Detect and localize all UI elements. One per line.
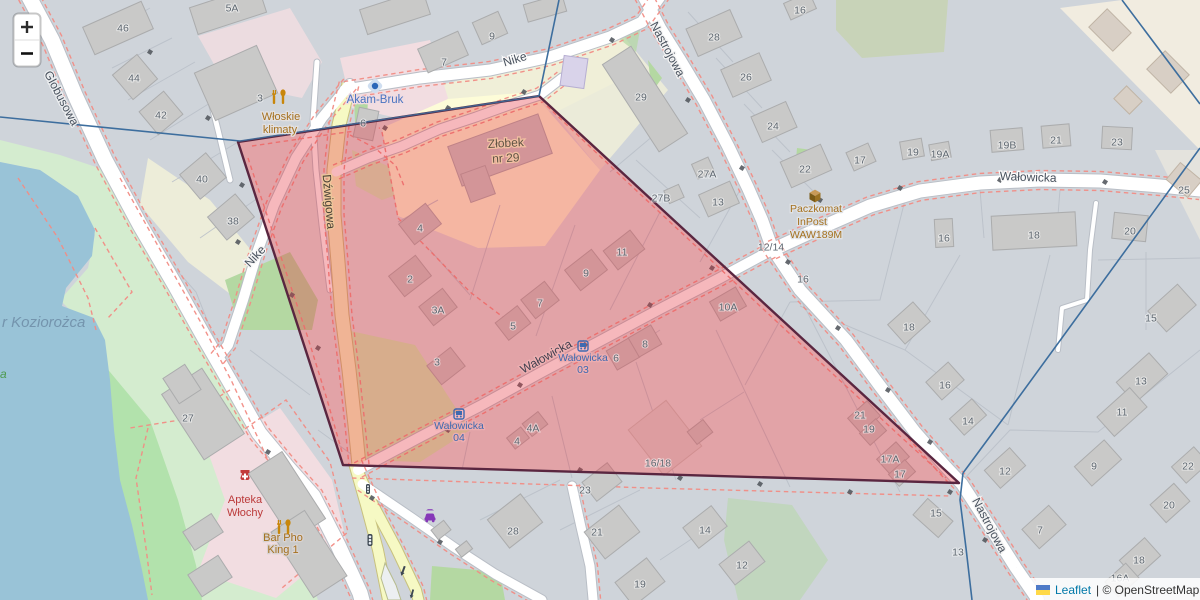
svg-text:19A: 19A — [931, 149, 950, 161]
svg-text:5A: 5A — [226, 3, 239, 15]
svg-text:44: 44 — [128, 73, 140, 85]
svg-text:Bar Pho: Bar Pho — [263, 532, 303, 544]
svg-text:16/18: 16/18 — [645, 458, 671, 470]
svg-text:King 1: King 1 — [267, 544, 298, 556]
svg-text:10A: 10A — [719, 302, 738, 314]
svg-text:22: 22 — [1182, 461, 1194, 473]
svg-text:12/14: 12/14 — [758, 242, 784, 254]
svg-text:25: 25 — [1178, 185, 1190, 197]
svg-text:27B: 27B — [652, 193, 671, 205]
svg-text:14: 14 — [962, 416, 974, 428]
svg-text:Paczkomat: Paczkomat — [790, 203, 842, 215]
svg-text:21: 21 — [1050, 135, 1062, 147]
svg-text:17A: 17A — [881, 454, 900, 466]
svg-text:42: 42 — [155, 110, 167, 122]
svg-text:13: 13 — [1135, 376, 1147, 388]
svg-text:5: 5 — [510, 321, 516, 333]
svg-text:40: 40 — [196, 174, 208, 186]
svg-text:r Koziorożca: r Koziorożca — [2, 314, 85, 331]
svg-text:13: 13 — [712, 197, 724, 209]
svg-text:9: 9 — [1091, 461, 1097, 473]
svg-text:21: 21 — [854, 410, 866, 422]
svg-text:24: 24 — [767, 121, 779, 133]
svg-text:3: 3 — [434, 357, 440, 369]
svg-text:03: 03 — [577, 364, 589, 376]
svg-text:InPost: InPost — [797, 216, 827, 228]
svg-text:11: 11 — [1117, 407, 1128, 419]
svg-text:a: a — [0, 367, 7, 381]
svg-text:6: 6 — [613, 353, 619, 365]
svg-text:12: 12 — [736, 560, 748, 572]
svg-text:22: 22 — [799, 164, 811, 176]
svg-text:Akam-Bruk: Akam-Bruk — [347, 94, 404, 106]
svg-text:Złobek: Złobek — [487, 135, 525, 151]
svg-text:27: 27 — [182, 413, 194, 425]
svg-text:Włochy: Włochy — [227, 507, 264, 519]
svg-text:04: 04 — [453, 432, 465, 444]
svg-text:4: 4 — [514, 436, 520, 448]
svg-text:16: 16 — [938, 233, 950, 245]
svg-text:14: 14 — [699, 525, 711, 537]
svg-text:12: 12 — [999, 466, 1011, 478]
svg-text:28: 28 — [708, 32, 720, 44]
svg-text:18: 18 — [903, 322, 915, 334]
svg-text:16: 16 — [794, 5, 806, 17]
svg-text:7: 7 — [1037, 525, 1043, 537]
svg-text:16: 16 — [797, 274, 809, 286]
svg-text:29: 29 — [635, 92, 647, 104]
svg-text:9: 9 — [489, 31, 495, 43]
svg-text:23: 23 — [1111, 137, 1123, 149]
svg-text:Wałowicka: Wałowicka — [434, 420, 484, 432]
svg-text:Wałowicka: Wałowicka — [558, 352, 608, 364]
svg-text:Leaflet: Leaflet — [1055, 583, 1092, 597]
svg-text:Włoskie: Włoskie — [262, 111, 301, 123]
svg-text:15: 15 — [1145, 313, 1157, 325]
svg-text:23: 23 — [579, 485, 591, 497]
svg-text:4: 4 — [417, 223, 423, 235]
svg-text:6: 6 — [360, 118, 366, 130]
svg-text:3: 3 — [257, 93, 263, 105]
svg-text:11: 11 — [617, 247, 628, 259]
svg-text:9: 9 — [583, 268, 589, 280]
svg-text:WAW189M: WAW189M — [790, 229, 842, 241]
svg-text:17: 17 — [894, 469, 906, 481]
svg-text:28: 28 — [507, 526, 519, 538]
svg-text:klimaty: klimaty — [263, 124, 298, 136]
svg-text:Apteka: Apteka — [228, 494, 263, 506]
svg-text:21: 21 — [591, 527, 603, 539]
svg-text:16: 16 — [939, 380, 951, 392]
svg-text:26: 26 — [740, 72, 752, 84]
svg-text:2: 2 — [407, 274, 413, 286]
svg-text:19: 19 — [863, 424, 875, 436]
svg-text:7: 7 — [537, 298, 543, 310]
svg-text:7: 7 — [441, 57, 447, 69]
svg-text:3A: 3A — [432, 305, 445, 317]
svg-text:38: 38 — [227, 216, 239, 228]
svg-text:27A: 27A — [698, 169, 717, 181]
svg-text:18: 18 — [1133, 555, 1145, 567]
svg-text:19: 19 — [907, 147, 919, 159]
svg-text:15: 15 — [930, 508, 942, 520]
svg-text:Wałowicka: Wałowicka — [999, 169, 1057, 185]
svg-text:nr 29: nr 29 — [492, 150, 520, 165]
svg-text:13: 13 — [952, 547, 964, 559]
svg-text:19B: 19B — [998, 140, 1017, 152]
svg-text:| © OpenStreetMap: | © OpenStreetMap — [1096, 583, 1200, 597]
svg-text:8: 8 — [642, 339, 648, 351]
svg-text:46: 46 — [117, 23, 129, 35]
svg-text:17: 17 — [854, 155, 866, 167]
svg-text:20: 20 — [1124, 226, 1136, 238]
svg-text:18: 18 — [1028, 230, 1040, 242]
svg-text:19: 19 — [634, 579, 646, 591]
svg-text:20: 20 — [1163, 500, 1175, 512]
svg-text:4A: 4A — [527, 423, 540, 435]
